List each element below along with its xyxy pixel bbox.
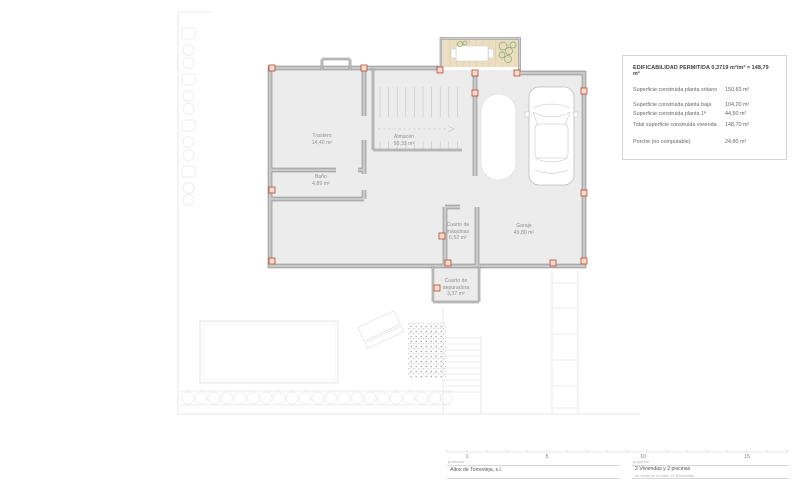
room-area: 50,33 m² <box>384 141 424 148</box>
room-label-garaje: Garaje 49,80 m² <box>504 223 544 236</box>
porch <box>443 40 518 67</box>
promotor-name: Altos de Torrevieja, s.l. <box>450 467 502 473</box>
floor-plan-sheet: Trastero 14,40 m² Almacén 50,33 m² Baño … <box>0 0 800 480</box>
info-row-baja: Superficie construida planta baja 104,20… <box>633 102 776 108</box>
buildability-info-box: EDIFICABILIDAD PERMITIDA 0,3719 m²/m² = … <box>622 55 787 160</box>
room-area: 14,40 m² <box>302 140 342 147</box>
info-row-porche: Porche (no computable) 24,80 m² <box>633 139 776 145</box>
tilted-deck <box>358 311 404 349</box>
room-area: 49,80 m² <box>504 230 544 237</box>
room-label-cuarto-depuradora: Cuarto de depuradora 3,37 m² <box>436 278 476 298</box>
proyecto-name: 2 Viviendas y 2 piscinas <box>635 466 690 472</box>
room-area: 6,52 m² <box>438 235 478 242</box>
covered-car <box>481 94 516 180</box>
pool-outline <box>200 321 338 383</box>
scale-ruler <box>447 450 788 453</box>
room-label-bano: Baño 4,89 m² <box>301 174 341 187</box>
title-block-rule-left-bottom <box>447 478 620 479</box>
proyecto-address: av. lomas de la costa, 21-B torrevieja <box>635 474 694 478</box>
proyecto-label: proyecto <box>633 460 649 464</box>
title-block-rule-left <box>447 465 620 466</box>
room-label-almacen: Almacén 50,33 m² <box>384 134 424 147</box>
info-row-primera: Superficie construida planta 1ª 44,50 m² <box>633 111 776 117</box>
info-row-total: Total superficie construida vivienda 148… <box>633 122 776 128</box>
vegetation-patch <box>408 322 446 378</box>
promotor-label: promotor <box>448 460 465 464</box>
left-planter-strip <box>182 28 195 206</box>
room-label-trastero: Trastero 14,40 m² <box>302 133 342 146</box>
room-label-cuarto-maquinas: Cuarto de máquinas 6,52 m² <box>438 222 478 242</box>
title-block-rule-right-bottom <box>632 478 789 479</box>
info-box-title: EDIFICABILIDAD PERMITIDA 0,3719 m²/m² = … <box>633 65 776 77</box>
scale-number-5: 5 <box>537 454 557 460</box>
side-path-steps <box>552 271 578 414</box>
car-top-view <box>525 87 578 185</box>
porch-table <box>451 46 494 61</box>
room-area: 3,37 m² <box>436 291 476 298</box>
info-row-sotano: Superficie construida planta sótano 150,… <box>633 87 776 93</box>
room-area: 4,89 m² <box>301 181 341 188</box>
scale-number-15: 15 <box>737 454 757 460</box>
exterior-stairs <box>443 308 481 414</box>
bottom-hedge <box>180 391 452 405</box>
